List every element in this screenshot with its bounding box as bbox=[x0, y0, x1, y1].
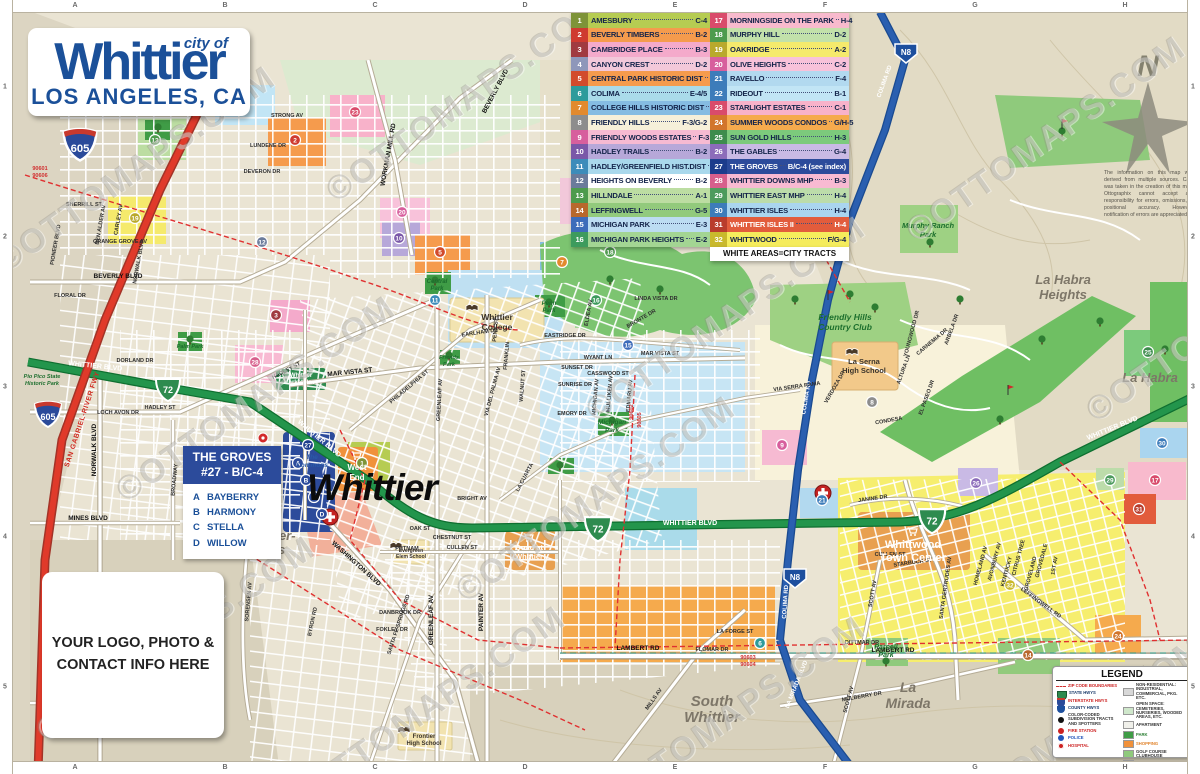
logo-line1: YOUR LOGO, PHOTO & bbox=[52, 635, 214, 651]
index-row-name: THE GROVES bbox=[727, 162, 778, 171]
grid-letter: H bbox=[1122, 2, 1127, 9]
index-row-number: 13 bbox=[571, 188, 588, 203]
svg-text:N8: N8 bbox=[901, 48, 912, 57]
legend-title: LEGEND bbox=[1056, 669, 1188, 681]
street-label: LOCH AVON DR bbox=[97, 410, 139, 416]
index-row-name: HILLNDALE bbox=[588, 191, 632, 200]
tract-spotter: 5 bbox=[435, 247, 446, 258]
legend-item: POLICE bbox=[1056, 735, 1121, 741]
tract-spotter: 21 bbox=[817, 495, 828, 506]
index-row-number: 24 bbox=[710, 115, 727, 130]
index-row-grid-ref: F/G-4 bbox=[828, 235, 849, 244]
place-label: Park bbox=[920, 230, 937, 239]
tract-spotter: 10 bbox=[394, 233, 405, 244]
index-row-number: 1 bbox=[571, 13, 588, 28]
svg-text:N8: N8 bbox=[790, 573, 801, 582]
tract-spotter: 29 bbox=[1105, 475, 1116, 486]
place-label: Friends bbox=[439, 355, 459, 361]
grid-letter: A bbox=[72, 764, 77, 771]
index-row-grid-ref: F-4 bbox=[835, 74, 849, 83]
groves-item: CSTELLA bbox=[193, 520, 273, 535]
svg-text:5: 5 bbox=[438, 249, 442, 256]
legend-item: INTERSTATE HWYS bbox=[1056, 698, 1121, 704]
svg-text:72: 72 bbox=[592, 525, 604, 536]
index-row: 21RAVELLOF-4 bbox=[710, 71, 849, 86]
place-label: Elem School bbox=[396, 554, 427, 560]
street-label: EASTRIDGE DR bbox=[544, 333, 586, 339]
legend-item: PARK bbox=[1123, 731, 1188, 739]
svg-text:7: 7 bbox=[560, 259, 564, 266]
index-row-number: 11 bbox=[571, 159, 588, 174]
frame-bottom: ABCDEFGH bbox=[0, 761, 1200, 774]
place-label: Marketplace bbox=[284, 380, 319, 386]
place-label: Whittier bbox=[515, 552, 543, 561]
place-label: Friendly Hills bbox=[818, 312, 872, 322]
index-row-grid-ref: C-1 bbox=[834, 103, 849, 112]
tract-spotter: 26 bbox=[971, 478, 982, 489]
grid-number: 5 bbox=[3, 684, 7, 691]
street-label: STRONG AV bbox=[271, 113, 303, 119]
place-label: South bbox=[691, 693, 734, 710]
index-row: 5CENTRAL PARK HISTORIC DISTC-2 bbox=[571, 71, 710, 86]
svg-text:31: 31 bbox=[1135, 506, 1143, 513]
grid-number: 3 bbox=[3, 384, 7, 391]
place-label: Park bbox=[443, 362, 456, 368]
state-icon bbox=[1056, 691, 1067, 697]
legend-item-label: FIRE STATION bbox=[1068, 729, 1096, 733]
index-row: 17MORNINGSIDE ON THE PARKH-4 bbox=[710, 13, 849, 28]
index-row-grid-ref: D-2 bbox=[834, 30, 849, 39]
interstate-icon bbox=[1056, 698, 1066, 704]
street-label: FLORAL DR bbox=[54, 293, 86, 299]
place-label: Parnell bbox=[874, 644, 898, 651]
index-row-name: HADLEY/GREENFIELD HIST.DIST bbox=[588, 162, 706, 171]
legend-item-label: SHOPPING bbox=[1136, 742, 1158, 746]
place-label: Commons bbox=[296, 462, 328, 469]
tract-spotter: 7 bbox=[557, 257, 568, 268]
index-row: 16MICHIGAN PARK HEIGHTSE-2 bbox=[571, 232, 710, 247]
place-label: Michigan bbox=[598, 419, 626, 426]
svg-text:28: 28 bbox=[251, 359, 259, 366]
index-row-name: LEFFINGWELL bbox=[588, 206, 643, 215]
svg-text:D: D bbox=[320, 511, 325, 518]
place-label: Whittier bbox=[290, 373, 313, 379]
legend-right-column: NON-RESIDENTIAL: INDUSTRIAL, COMMERCIAL,… bbox=[1123, 683, 1188, 768]
school-book-icon bbox=[466, 305, 478, 312]
tract-spotter: 9 bbox=[777, 440, 788, 451]
dash-icon bbox=[1056, 683, 1066, 689]
svg-text:17: 17 bbox=[1151, 477, 1159, 484]
svg-text:19: 19 bbox=[131, 215, 139, 222]
index-row: 15MICHIGAN PARKE-3 bbox=[571, 217, 710, 232]
index-row-name: WHITTIER DOWNS MHP bbox=[727, 176, 813, 185]
index-row-grid-ref: G/H-5 bbox=[834, 118, 856, 127]
svg-text:18: 18 bbox=[606, 249, 614, 256]
index-row-number: 26 bbox=[710, 144, 727, 159]
tract-spotter: 27 bbox=[303, 440, 314, 451]
tract-spotter: D bbox=[317, 509, 328, 520]
legend-item-label: GOLF COURSE CLUBHOUSE bbox=[1136, 750, 1188, 759]
place-label: Park bbox=[605, 427, 619, 434]
street-label: HADLEY ST bbox=[144, 405, 176, 411]
svg-text:12: 12 bbox=[258, 239, 266, 246]
index-row: 30WHITTIER ISLESH-4 bbox=[710, 203, 849, 218]
index-row-number: 2 bbox=[571, 28, 588, 43]
tract-spotter: 31 bbox=[1134, 504, 1145, 515]
svg-text:6: 6 bbox=[758, 640, 762, 647]
index-row-name: COLIMA bbox=[588, 89, 620, 98]
index-row-grid-ref: E-3 bbox=[696, 220, 710, 229]
place-label: La bbox=[900, 679, 917, 695]
legend-swatch bbox=[1123, 688, 1134, 696]
place-label: High School bbox=[842, 366, 886, 375]
svg-text:27: 27 bbox=[304, 442, 312, 449]
street-label: NORWALK BLVD bbox=[91, 423, 98, 476]
index-row: 23STARLIGHT ESTATESC-1 bbox=[710, 101, 849, 116]
legend-box: LEGEND ZIP CODE BOUNDARIESSTATE HWYSINTE… bbox=[1052, 666, 1192, 758]
street-label: LA FORGE ST bbox=[717, 629, 754, 635]
street-label: PAINTER AV bbox=[478, 592, 485, 631]
grid-letter: F bbox=[823, 764, 827, 771]
legend-item: OPEN SPACE: CEMETERIES, NURSERIES, WOODE… bbox=[1123, 702, 1188, 720]
index-row-number: 28 bbox=[710, 174, 727, 189]
groves-inset-box: THE GROVES #27 - B/C-4 ABAYBERRYBHARMONY… bbox=[183, 446, 281, 559]
index-row-number: 6 bbox=[571, 86, 588, 101]
svg-text:30: 30 bbox=[1158, 440, 1166, 447]
index-row-grid-ref: H-4 bbox=[841, 16, 856, 25]
place-label: Park bbox=[542, 308, 556, 314]
index-row-number: 7 bbox=[571, 101, 588, 116]
grid-number: 4 bbox=[3, 534, 7, 541]
legend-item-label: HOSPITAL bbox=[1068, 744, 1089, 748]
grid-number: 1 bbox=[1191, 84, 1195, 91]
index-row-grid-ref: H-4 bbox=[834, 220, 849, 229]
index-row-grid-ref: B/C-4 (see index) bbox=[788, 162, 849, 171]
place-label: High School bbox=[407, 741, 442, 747]
place-label: Quad at bbox=[515, 543, 543, 552]
legend-item-label: OPEN SPACE: CEMETERIES, NURSERIES, WOODE… bbox=[1136, 702, 1188, 720]
index-row-grid-ref: H-4 bbox=[834, 191, 849, 200]
tract-spotter: 8 bbox=[867, 397, 878, 408]
grid-letter: B bbox=[222, 764, 227, 771]
index-row: 29WHITTIER EAST MHPH-4 bbox=[710, 188, 849, 203]
index-row-number: 32 bbox=[710, 232, 727, 247]
index-row: 14LEFFINGWELLG-5 bbox=[571, 203, 710, 218]
tract-spotter: 15 bbox=[623, 340, 634, 351]
index-row-number: 17 bbox=[710, 13, 727, 28]
place-label: Heights bbox=[1039, 287, 1087, 302]
street-label: EMORY DR bbox=[557, 411, 586, 417]
index-row: 25SUN GOLD HILLSH-3 bbox=[710, 130, 849, 145]
tract-spotter: 23 bbox=[350, 107, 361, 118]
tract-spotter: 28 bbox=[250, 357, 261, 368]
place-label: La Serna bbox=[848, 357, 881, 366]
tract-spotter: 30 bbox=[1157, 438, 1168, 449]
street-label: DANBROOK DR bbox=[379, 610, 421, 616]
grid-number: 1 bbox=[3, 84, 7, 91]
grid-letter: D bbox=[522, 764, 527, 771]
grid-letter: E bbox=[673, 764, 678, 771]
legend-swatch bbox=[1123, 750, 1134, 758]
tract-spotter: 14 bbox=[1023, 650, 1034, 661]
index-row-name: STARLIGHT ESTATES bbox=[727, 103, 806, 112]
grid-letter: F bbox=[823, 2, 827, 9]
index-row-number: 19 bbox=[710, 42, 727, 57]
index-row-number: 16 bbox=[571, 232, 588, 247]
svg-text:24: 24 bbox=[1114, 633, 1122, 640]
disclaimer-text: The information on this map was derived … bbox=[1104, 170, 1194, 219]
tract-spotter: 2 bbox=[290, 135, 301, 146]
street-label: SHERRILL ST bbox=[66, 202, 103, 208]
street-label: FOKLEY DR bbox=[376, 627, 408, 633]
place-label: Central bbox=[427, 279, 448, 285]
place-label: Park bbox=[430, 286, 444, 292]
index-row-name: CAMBRIDGE PLACE bbox=[588, 45, 663, 54]
title-region: LOS ANGELES, CA bbox=[28, 84, 250, 110]
zipcode-label: 90601 bbox=[32, 166, 47, 172]
tract-index-table: 1AMESBURYC-42BEVERLY TIMBERSB-23CAMBRIDG… bbox=[571, 13, 849, 247]
frame-top: ABCDEFGH bbox=[0, 0, 1200, 13]
index-row: 22RIDEOUTB-1 bbox=[710, 86, 849, 101]
index-row-name: WHITTIER ISLES II bbox=[727, 220, 794, 229]
legend-item: COUNTY HWYS bbox=[1056, 706, 1121, 712]
groves-subtitle: #27 - B/C-4 bbox=[185, 465, 279, 480]
tract-spotter: 18 bbox=[605, 247, 616, 258]
street-label: GREENLEAF AV bbox=[428, 594, 435, 645]
legend-item-label: PARK bbox=[1136, 733, 1148, 737]
index-row-name: SUMMER WOODS CONDOS bbox=[727, 118, 827, 127]
place-label: End bbox=[349, 473, 364, 482]
svg-text:26: 26 bbox=[972, 480, 980, 487]
index-row-name: AMESBURY bbox=[588, 16, 633, 25]
place-label: Historic Park bbox=[25, 381, 60, 387]
index-row: 13HILLNDALEA-1 bbox=[571, 188, 710, 203]
index-row-grid-ref: B-2 bbox=[695, 30, 710, 39]
fire-icon bbox=[1056, 728, 1066, 734]
place-label: Mirada bbox=[885, 695, 930, 711]
tract-spotter: 25 bbox=[1143, 347, 1154, 358]
index-row-grid-ref: G-5 bbox=[695, 206, 710, 215]
zipcode-label: 90602 bbox=[629, 404, 635, 419]
hospital-icon bbox=[1056, 743, 1066, 749]
index-row: 28WHITTIER DOWNS MHPB-3 bbox=[710, 174, 849, 189]
legend-item: STATE HWYS bbox=[1056, 691, 1121, 697]
street-label: DEVERON DR bbox=[244, 169, 281, 175]
tract-spotter: 13 bbox=[150, 135, 161, 146]
index-row-name: CENTRAL PARK HISTORIC DIST bbox=[588, 74, 703, 83]
index-row-name: COLLEGE HILLS HISTORIC DIST bbox=[588, 103, 704, 112]
school-book-icon bbox=[846, 349, 858, 356]
street-label: MAR VISTA ST bbox=[641, 351, 680, 357]
svg-text:605: 605 bbox=[71, 143, 90, 155]
index-row-name: THE GABLES bbox=[727, 147, 777, 156]
svg-text:32: 32 bbox=[1006, 582, 1014, 589]
svg-text:14: 14 bbox=[1024, 652, 1032, 659]
index-row-name: FRIENDLY HILLS bbox=[588, 118, 649, 127]
place-label: Whittwood bbox=[885, 539, 941, 551]
legend-item: GOLF COURSE CLUBHOUSE bbox=[1123, 750, 1188, 759]
grid-letter: C bbox=[372, 2, 377, 9]
zipcode-label: 90603 bbox=[740, 655, 755, 661]
index-row: 32WHITTWOODF/G-4 bbox=[710, 232, 849, 247]
grid-letter: B bbox=[222, 2, 227, 9]
grid-letter: E bbox=[673, 2, 678, 9]
legend-item: COLOR-CODED SUBDIVISION TRACTS AND SPOTT… bbox=[1056, 713, 1121, 726]
index-row: 3CAMBRIDGE PLACEB-3 bbox=[571, 42, 710, 57]
place-label: Whittier bbox=[481, 312, 513, 322]
index-row-number: 14 bbox=[571, 203, 588, 218]
index-row: 20OLIVE HEIGHTSC-2 bbox=[710, 57, 849, 72]
index-row-name: HADLEY TRAILS bbox=[588, 147, 649, 156]
street-label: LUNDENE DR bbox=[250, 143, 286, 149]
legend-left-column: ZIP CODE BOUNDARIESSTATE HWYSINTERSTATE … bbox=[1056, 683, 1121, 768]
svg-text:72: 72 bbox=[926, 517, 938, 528]
legend-item: HOSPITAL bbox=[1056, 743, 1121, 749]
street-label: LINDA VISTA DR bbox=[634, 296, 677, 302]
place-label: Pio Pico State bbox=[24, 374, 61, 380]
index-row: 1AMESBURYC-4 bbox=[571, 13, 710, 28]
legend-item: APARTMENT bbox=[1123, 721, 1188, 729]
index-row-number: 21 bbox=[710, 71, 727, 86]
grid-letter: C bbox=[372, 764, 377, 771]
grid-letter: G bbox=[972, 764, 977, 771]
place-label: West bbox=[348, 463, 367, 472]
tract-spotter: 24 bbox=[1113, 631, 1124, 642]
grid-number: 4 bbox=[1191, 534, 1195, 541]
index-row: 11HADLEY/GREENFIELD HIST.DISTC-2 bbox=[571, 159, 710, 174]
svg-text:20: 20 bbox=[398, 209, 406, 216]
legend-swatch bbox=[1123, 740, 1134, 748]
fire-station-icon bbox=[258, 433, 268, 443]
index-row-name: CANYON CREST bbox=[588, 60, 649, 69]
groves-list: ABAYBERRYBHARMONYCSTELLADWILLOW bbox=[183, 484, 281, 559]
index-row-number: 23 bbox=[710, 101, 727, 116]
index-row-grid-ref: B-3 bbox=[695, 45, 710, 54]
index-row: 26THE GABLESG-4 bbox=[710, 144, 849, 159]
street-label: FLOMAR DR bbox=[696, 647, 729, 653]
index-row-name: RIDEOUT bbox=[727, 89, 763, 98]
index-row-grid-ref: E-2 bbox=[696, 235, 710, 244]
tract-spotter: 3 bbox=[271, 310, 282, 321]
index-row: 27THE GROVESB/C-4 (see index) bbox=[710, 159, 849, 174]
legend-item: FIRE STATION bbox=[1056, 728, 1121, 734]
index-row: 24SUMMER WOODS CONDOSG/H-5 bbox=[710, 115, 849, 130]
street-label: SUNRISE DR bbox=[558, 382, 592, 388]
index-row-name: MORNINGSIDE ON THE PARK bbox=[727, 16, 834, 25]
index-row-grid-ref: C-2 bbox=[834, 60, 849, 69]
index-row-number: 18 bbox=[710, 28, 727, 43]
index-row-name: RAVELLO bbox=[727, 74, 764, 83]
grid-letter: G bbox=[972, 2, 977, 9]
legend-item-label: APARTMENT bbox=[1136, 723, 1162, 727]
groves-item: ABAYBERRY bbox=[193, 490, 273, 505]
index-row-grid-ref: D-2 bbox=[695, 60, 710, 69]
index-row-number: 4 bbox=[571, 57, 588, 72]
legend-item-label: INTERSTATE HWYS bbox=[1068, 699, 1107, 703]
index-row-name: WHITTIER EAST MHP bbox=[727, 191, 805, 200]
groves-item: BHARMONY bbox=[193, 505, 273, 520]
index-row: 4CANYON CRESTD-2 bbox=[571, 57, 710, 72]
index-row-grid-ref: E-4/5 bbox=[690, 89, 710, 98]
grid-letter: D bbox=[522, 2, 527, 9]
index-row: 10HADLEY TRAILSB-2 bbox=[571, 144, 710, 159]
street-label: OAK ST bbox=[410, 526, 431, 532]
legend-item-label: ZIP CODE BOUNDARIES bbox=[1068, 684, 1117, 688]
index-row-number: 22 bbox=[710, 86, 727, 101]
county-icon bbox=[1056, 706, 1066, 712]
place-label: Park bbox=[878, 652, 894, 659]
legend-item-label: STATE HWYS bbox=[1069, 691, 1096, 695]
index-row-number: 27 bbox=[710, 159, 727, 174]
index-row: 2BEVERLY TIMBERSB-2 bbox=[571, 28, 710, 43]
svg-text:13: 13 bbox=[151, 137, 159, 144]
tract-spotter: 6 bbox=[755, 638, 766, 649]
svg-text:29: 29 bbox=[1106, 477, 1114, 484]
logo-line2: CONTACT INFO HERE bbox=[57, 657, 210, 673]
legend-item: SHOPPING bbox=[1123, 740, 1188, 748]
index-row-number: 20 bbox=[710, 57, 727, 72]
index-row: 9FRIENDLY WOODS ESTATESF-3 bbox=[571, 130, 710, 145]
svg-text:10: 10 bbox=[395, 235, 403, 242]
index-row-name: WHITTWOOD bbox=[727, 235, 777, 244]
index-row-name: FRIENDLY WOODS ESTATES bbox=[588, 133, 691, 142]
tract-spotter: 19 bbox=[130, 213, 141, 224]
place-label: Town Center bbox=[880, 552, 947, 564]
school-book-icon bbox=[398, 727, 410, 734]
index-row-number: 15 bbox=[571, 217, 588, 232]
police-icon bbox=[1056, 735, 1066, 741]
index-row: 6COLIMAE-4/5 bbox=[571, 86, 710, 101]
place-label: Murphy Ranch bbox=[902, 221, 955, 230]
index-row: 8FRIENDLY HILLSF-3/G-2 bbox=[571, 115, 710, 130]
index-row-grid-ref: H-4 bbox=[834, 206, 849, 215]
index-row-number: 9 bbox=[571, 130, 588, 145]
legend-item: ZIP CODE BOUNDARIES bbox=[1056, 683, 1121, 689]
place-label: La Habra bbox=[1122, 370, 1178, 385]
svg-text:15: 15 bbox=[624, 342, 632, 349]
tract-spotter: 12 bbox=[257, 237, 268, 248]
index-row: 31WHITTIER ISLES IIH-4 bbox=[710, 217, 849, 232]
tract-spotter: 17 bbox=[1150, 475, 1161, 486]
index-row-name: MURPHY HILL bbox=[727, 30, 780, 39]
index-row-number: 29 bbox=[710, 188, 727, 203]
grid-number: 5 bbox=[1191, 684, 1195, 691]
street-label: CHESTNUT ST bbox=[433, 535, 472, 541]
place-label: Penn bbox=[542, 301, 557, 307]
street-label: CULLEN ST bbox=[447, 545, 479, 551]
street-label: MINES BLVD bbox=[68, 515, 108, 522]
index-row-number: 25 bbox=[710, 130, 727, 145]
svg-text:72: 72 bbox=[163, 385, 173, 395]
logo-placeholder-box: YOUR LOGO, PHOTO & CONTACT INFO HERE bbox=[42, 572, 224, 738]
groves-header: THE GROVES #27 - B/C-4 bbox=[183, 446, 281, 484]
frame-right: 12345 bbox=[1187, 0, 1200, 774]
index-row-grid-ref: A-2 bbox=[834, 45, 849, 54]
grid-number: 2 bbox=[1191, 234, 1195, 241]
index-row-grid-ref: B-1 bbox=[834, 89, 849, 98]
zipcode-label: 90604 bbox=[740, 662, 756, 668]
index-row-name: MICHIGAN PARK HEIGHTS bbox=[588, 235, 684, 244]
index-row-number: 5 bbox=[571, 71, 588, 86]
place-label: Country Club bbox=[818, 322, 872, 332]
index-row-name: HEIGHTS ON BEVERLY bbox=[588, 176, 672, 185]
legend-swatch bbox=[1123, 731, 1134, 739]
legend-item-label: NON-RESIDENTIAL: INDUSTRIAL, COMMERCIAL,… bbox=[1136, 683, 1188, 701]
tract-spotter: 20 bbox=[397, 207, 408, 218]
street-label: WYANT LN bbox=[584, 355, 613, 361]
legend-item-label: COLOR-CODED SUBDIVISION TRACTS AND SPOTT… bbox=[1068, 713, 1121, 726]
svg-text:23: 23 bbox=[351, 109, 359, 116]
